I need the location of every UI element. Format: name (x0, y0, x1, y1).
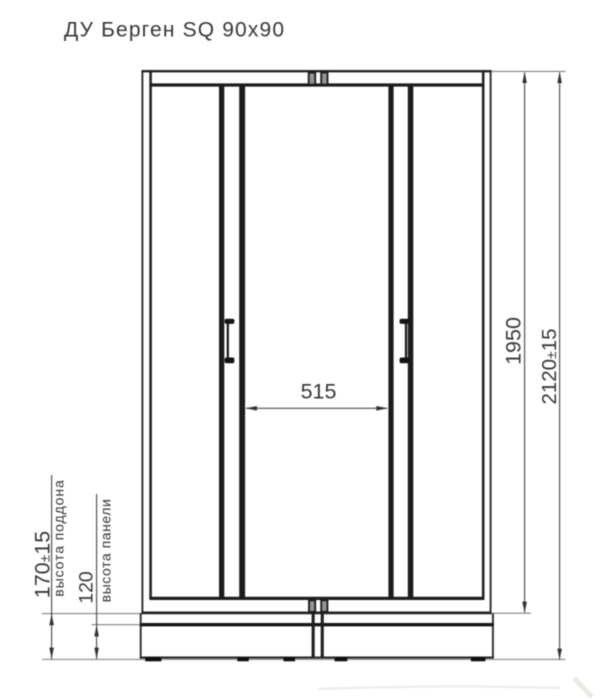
svg-text:ДУ Берген SQ 90x90: ДУ Берген SQ 90x90 (64, 19, 285, 42)
svg-text:120: 120 (76, 571, 98, 604)
svg-text:2120±15: 2120±15 (538, 328, 561, 404)
svg-text:высота поддона: высота поддона (51, 479, 67, 596)
svg-text:1950: 1950 (502, 317, 526, 365)
svg-text:высота панели: высота панели (98, 499, 114, 603)
svg-text:515: 515 (301, 380, 337, 404)
